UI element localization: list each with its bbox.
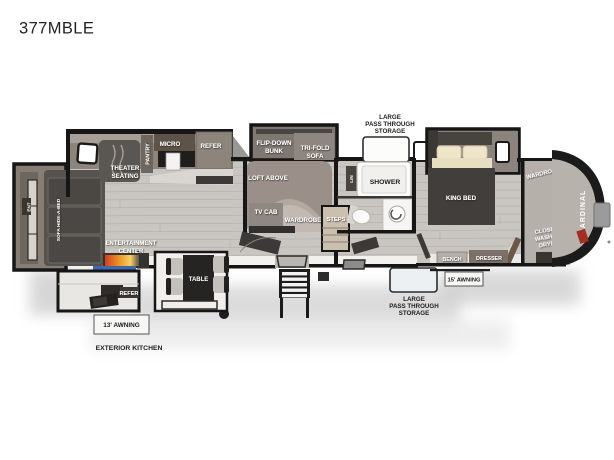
- svg-text:SOFA HIDE-A-BED: SOFA HIDE-A-BED: [56, 198, 62, 241]
- svg-text:PANTRY: PANTRY: [146, 143, 152, 165]
- svg-text:CARDINAL: CARDINAL: [580, 190, 587, 235]
- svg-text:EXTERIOR KITCHEN: EXTERIOR KITCHEN: [96, 345, 163, 352]
- svg-text:SHOWER: SHOWER: [370, 179, 401, 186]
- svg-text:15' AWNING: 15' AWNING: [447, 278, 481, 284]
- svg-text:BUNK: BUNK: [265, 148, 283, 155]
- svg-text:BENCH: BENCH: [442, 257, 461, 263]
- svg-text:DRESSER: DRESSER: [476, 256, 502, 262]
- svg-text:MICRO: MICRO: [160, 141, 181, 148]
- svg-text:LARGE: LARGE: [403, 296, 425, 303]
- svg-text:PASS THROUGH: PASS THROUGH: [389, 303, 439, 310]
- svg-text:ENTERTAINMENT: ENTERTAINMENT: [106, 241, 157, 247]
- svg-text:STORAGE: STORAGE: [375, 128, 405, 135]
- svg-text:377MBLE: 377MBLE: [19, 20, 94, 38]
- svg-text:REFER: REFER: [120, 291, 139, 297]
- svg-text:TABLE: TABLE: [189, 277, 209, 283]
- svg-text:TRI-FOLD: TRI-FOLD: [301, 145, 330, 152]
- svg-text:LARGE: LARGE: [379, 114, 401, 121]
- svg-text:KING BED: KING BED: [446, 195, 477, 202]
- svg-text:REFER: REFER: [201, 143, 223, 150]
- svg-text:13' AWNING: 13' AWNING: [103, 322, 139, 329]
- svg-text:SEATING: SEATING: [111, 173, 138, 180]
- svg-text:WARDROBE: WARDROBE: [285, 217, 322, 224]
- svg-text:ENT: ENT: [27, 202, 32, 211]
- svg-text:STORAGE: STORAGE: [399, 310, 429, 317]
- svg-text:FLIP-DOWN: FLIP-DOWN: [256, 140, 292, 147]
- svg-text:SOFA: SOFA: [307, 153, 324, 160]
- svg-text:LOFT ABOVE: LOFT ABOVE: [248, 175, 288, 182]
- svg-text:PASS THROUGH: PASS THROUGH: [365, 121, 415, 128]
- svg-text:STEPS: STEPS: [326, 217, 345, 223]
- svg-text:TV CAB: TV CAB: [254, 209, 278, 216]
- svg-text:LIN: LIN: [349, 175, 354, 183]
- svg-text:THEATER: THEATER: [111, 165, 140, 172]
